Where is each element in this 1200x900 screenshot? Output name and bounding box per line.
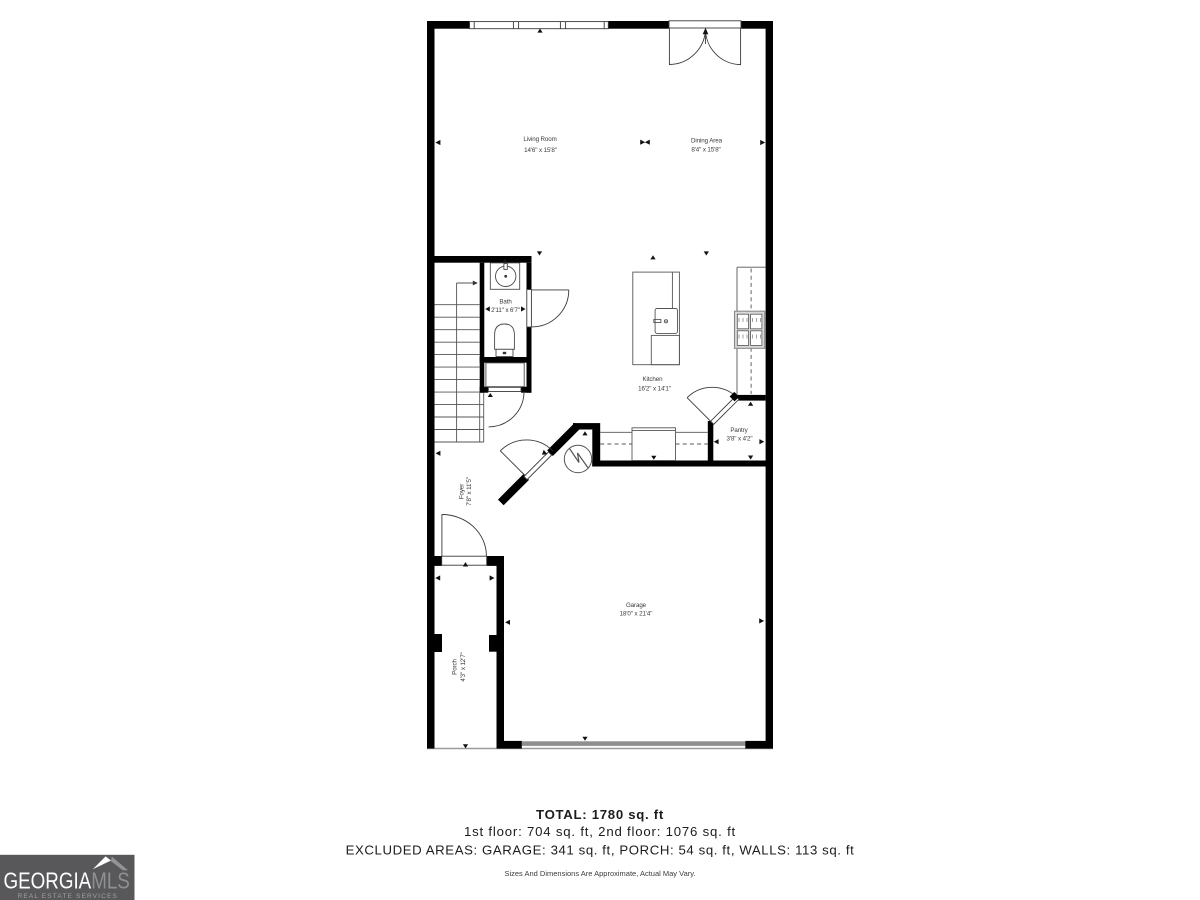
svg-text:TOTAL: 1780 sq. ft: TOTAL: 1780 sq. ft bbox=[536, 807, 664, 822]
svg-text:Pantry: Pantry bbox=[730, 427, 748, 434]
svg-text:Dining Area: Dining Area bbox=[691, 137, 723, 144]
svg-text:Bath: Bath bbox=[499, 298, 512, 305]
svg-text:3'8" x 4'2": 3'8" x 4'2" bbox=[727, 435, 753, 442]
svg-text:Porch: Porch bbox=[452, 659, 459, 675]
svg-text:2'11" x 6'7": 2'11" x 6'7" bbox=[491, 307, 520, 314]
svg-text:Living Room: Living Room bbox=[523, 136, 556, 143]
svg-text:REAL ESTATE SERVICES: REAL ESTATE SERVICES bbox=[18, 893, 118, 900]
svg-text:Foyer: Foyer bbox=[458, 484, 465, 499]
svg-text:8'4" x 15'8": 8'4" x 15'8" bbox=[691, 146, 720, 153]
svg-text:14'6" x 15'8": 14'6" x 15'8" bbox=[524, 147, 557, 154]
svg-text:1st floor: 704 sq. ft, 2nd flo: 1st floor: 704 sq. ft, 2nd floor: 1076 s… bbox=[464, 824, 736, 839]
svg-text:18'0" x 21'4": 18'0" x 21'4" bbox=[620, 610, 653, 617]
svg-text:EXCLUDED AREAS: GARAGE: 341 sq: EXCLUDED AREAS: GARAGE: 341 sq. ft, PORC… bbox=[346, 843, 855, 858]
svg-text:4'3" x 12'7": 4'3" x 12'7" bbox=[460, 652, 467, 681]
svg-text:Kitchen: Kitchen bbox=[643, 376, 664, 383]
svg-text:16'2" x 14'1": 16'2" x 14'1" bbox=[638, 385, 671, 392]
svg-text:Garage: Garage bbox=[626, 602, 647, 609]
svg-text:7'8" x 11'5": 7'8" x 11'5" bbox=[466, 477, 473, 506]
svg-text:GEORGIAMLS: GEORGIAMLS bbox=[4, 868, 130, 895]
svg-text:Sizes And Dimensions Are Appro: Sizes And Dimensions Are Approximate, Ac… bbox=[504, 869, 695, 878]
